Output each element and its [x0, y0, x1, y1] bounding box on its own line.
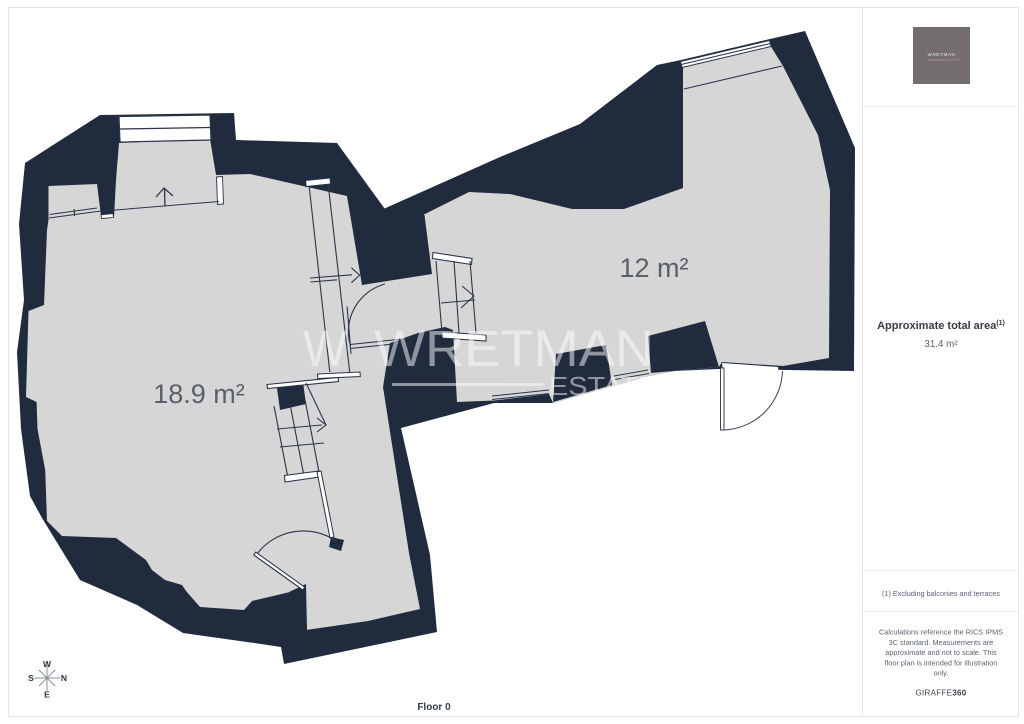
svg-text:3C standard. Measurements are: 3C standard. Measurements are	[889, 638, 994, 647]
svg-text:ESTATE: ESTATE	[948, 58, 961, 62]
svg-text:approximate and not to scale.: approximate and not to scale. This	[885, 648, 997, 657]
svg-text:ESTATE: ESTATE	[549, 371, 657, 401]
svg-text:31.4 m²: 31.4 m²	[924, 339, 958, 350]
svg-text:WRETMAN: WRETMAN	[374, 320, 654, 377]
svg-text:Approximate total area(1): Approximate total area(1)	[877, 320, 1005, 332]
svg-text:N: N	[61, 673, 67, 683]
svg-text:E: E	[44, 690, 50, 700]
svg-text:only.: only.	[934, 669, 949, 678]
svg-text:W: W	[303, 320, 347, 377]
svg-text:Floor 0: Floor 0	[417, 702, 451, 713]
svg-text:(1) Excluding balconies and te: (1) Excluding balconies and terraces	[882, 589, 1000, 598]
svg-text:W: W	[43, 659, 52, 669]
svg-text:Calculations reference the RIC: Calculations reference the RICS IPMS	[879, 628, 1003, 637]
svg-text:S: S	[28, 673, 34, 683]
svg-text:WRETMAN: WRETMAN	[928, 52, 956, 57]
svg-text:floor plan is intended for ill: floor plan is intended for illustration	[885, 658, 998, 667]
svg-text:12 m²: 12 m²	[619, 253, 688, 283]
svg-text:18.9 m²: 18.9 m²	[153, 379, 245, 409]
svg-text:GIRAFFE360: GIRAFFE360	[915, 689, 966, 698]
